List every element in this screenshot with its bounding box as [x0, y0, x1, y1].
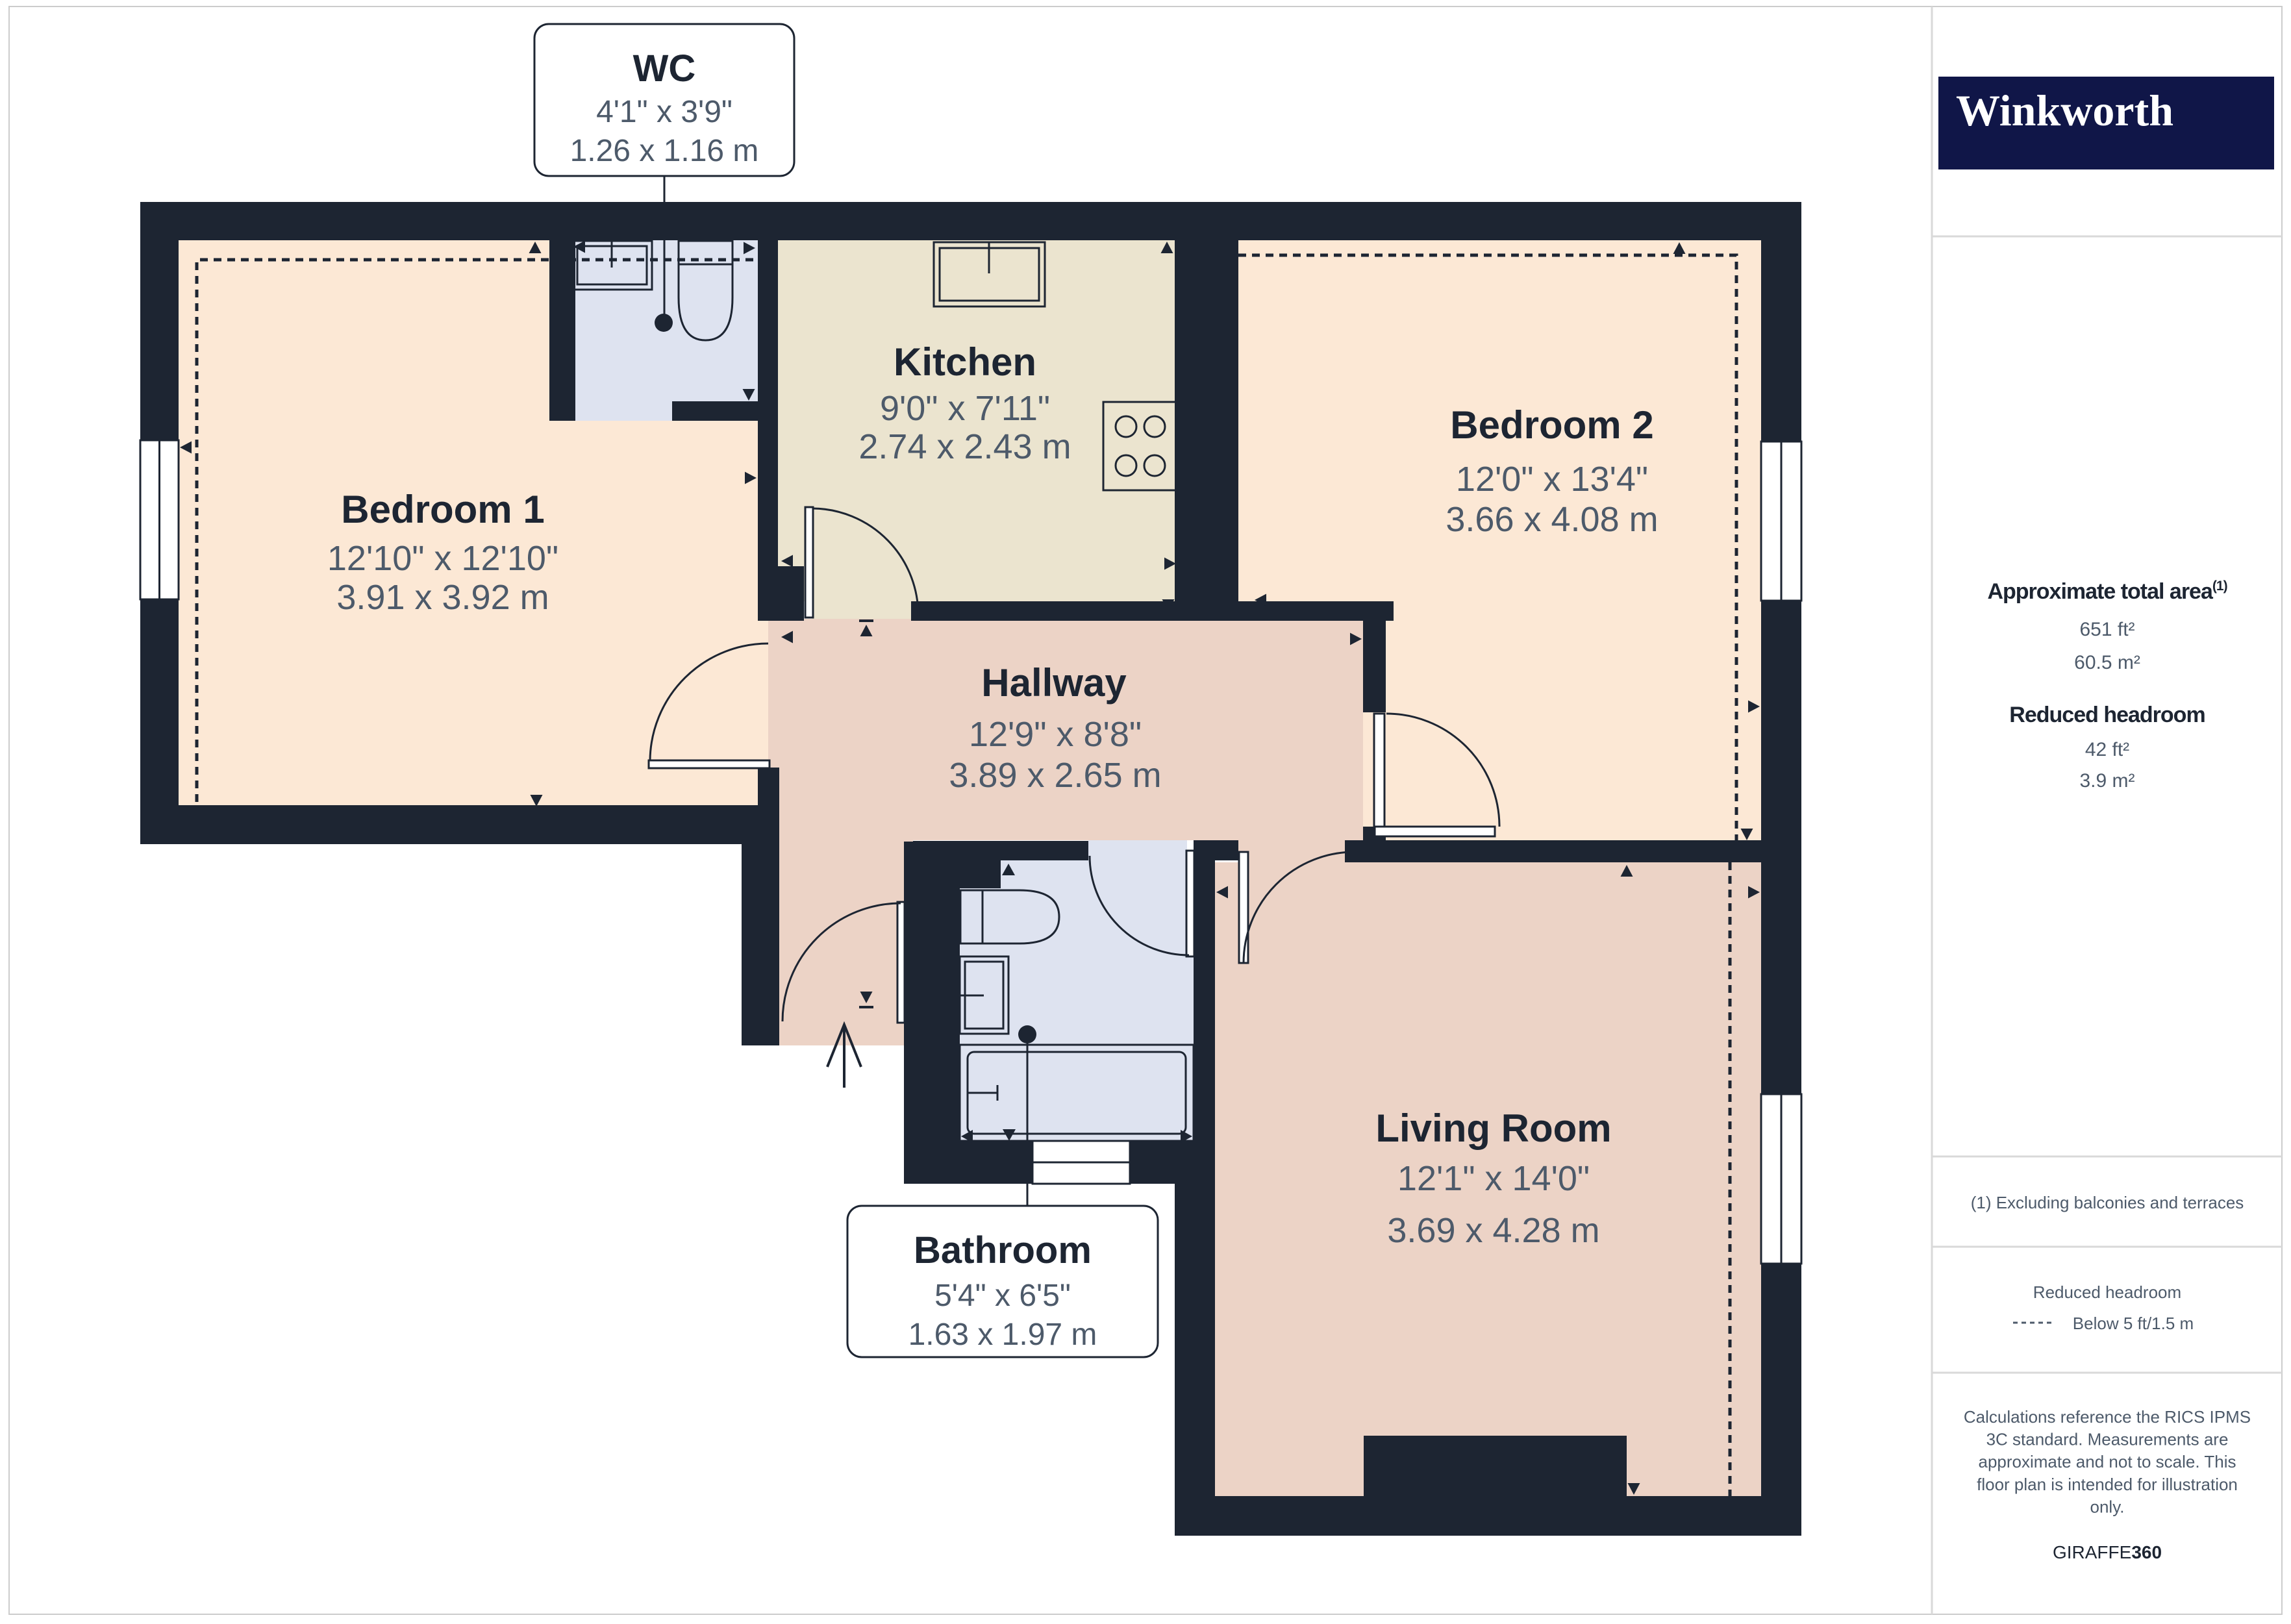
- svg-text:WC: WC: [633, 47, 696, 90]
- svg-text:Approximate total area(1): Approximate total area(1): [1987, 579, 2227, 604]
- svg-text:3.91 x 3.92 m: 3.91 x 3.92 m: [336, 578, 549, 617]
- svg-text:12'10" x 12'10": 12'10" x 12'10": [327, 539, 558, 578]
- svg-text:Bedroom 2: Bedroom 2: [1450, 403, 1653, 447]
- svg-text:3.89 x 2.65 m: 3.89 x 2.65 m: [949, 756, 1161, 795]
- svg-text:Reduced headroom: Reduced headroom: [2009, 703, 2205, 727]
- svg-text:Reduced headroom: Reduced headroom: [2033, 1282, 2181, 1302]
- svg-text:4'1" x 3'9": 4'1" x 3'9": [596, 95, 732, 129]
- svg-text:1.63 x 1.97 m: 1.63 x 1.97 m: [908, 1318, 1097, 1352]
- svg-text:3.9 m²: 3.9 m²: [2079, 770, 2135, 792]
- svg-text:12'9" x 8'8": 12'9" x 8'8": [969, 715, 1142, 754]
- svg-text:floor plan is intended for ill: floor plan is intended for illustration: [1977, 1475, 2238, 1494]
- svg-text:Calculations reference the RIC: Calculations reference the RICS IPMS: [1964, 1407, 2251, 1427]
- svg-text:60.5 m²: 60.5 m²: [2074, 652, 2140, 673]
- svg-text:3.66 x 4.08 m: 3.66 x 4.08 m: [1446, 500, 1658, 539]
- svg-text:Kitchen: Kitchen: [894, 340, 1036, 384]
- svg-text:Hallway: Hallway: [981, 661, 1127, 705]
- svg-text:42 ft²: 42 ft²: [2085, 739, 2129, 760]
- svg-text:1.26 x 1.16 m: 1.26 x 1.16 m: [570, 134, 759, 168]
- svg-text:approximate and not to scale.: approximate and not to scale. This: [1979, 1452, 2236, 1471]
- svg-text:3C standard. Measurements are: 3C standard. Measurements are: [1986, 1430, 2229, 1449]
- svg-text:12'0" x 13'4": 12'0" x 13'4": [1456, 460, 1648, 499]
- svg-text:GIRAFFE360: GIRAFFE360: [2053, 1542, 2162, 1562]
- svg-text:5'4" x 6'5": 5'4" x 6'5": [934, 1279, 1071, 1313]
- svg-text:9'0" x 7'11": 9'0" x 7'11": [880, 389, 1050, 428]
- svg-text:651 ft²: 651 ft²: [2079, 619, 2135, 640]
- svg-text:12'1" x 14'0": 12'1" x 14'0": [1397, 1159, 1590, 1198]
- svg-text:Living Room: Living Room: [1375, 1106, 1611, 1150]
- svg-text:2.74 x 2.43 m: 2.74 x 2.43 m: [858, 427, 1071, 466]
- svg-text:3.69 x 4.28 m: 3.69 x 4.28 m: [1387, 1211, 1599, 1250]
- svg-text:Bathroom: Bathroom: [914, 1229, 1092, 1271]
- svg-text:only.: only.: [2090, 1497, 2125, 1516]
- svg-text:(1) Excluding balconies and te: (1) Excluding balconies and terraces: [1971, 1193, 2244, 1212]
- svg-text:Below 5 ft/1.5 m: Below 5 ft/1.5 m: [2073, 1314, 2194, 1333]
- svg-text:Winkworth: Winkworth: [1956, 86, 2173, 135]
- svg-text:Bedroom 1: Bedroom 1: [341, 488, 544, 531]
